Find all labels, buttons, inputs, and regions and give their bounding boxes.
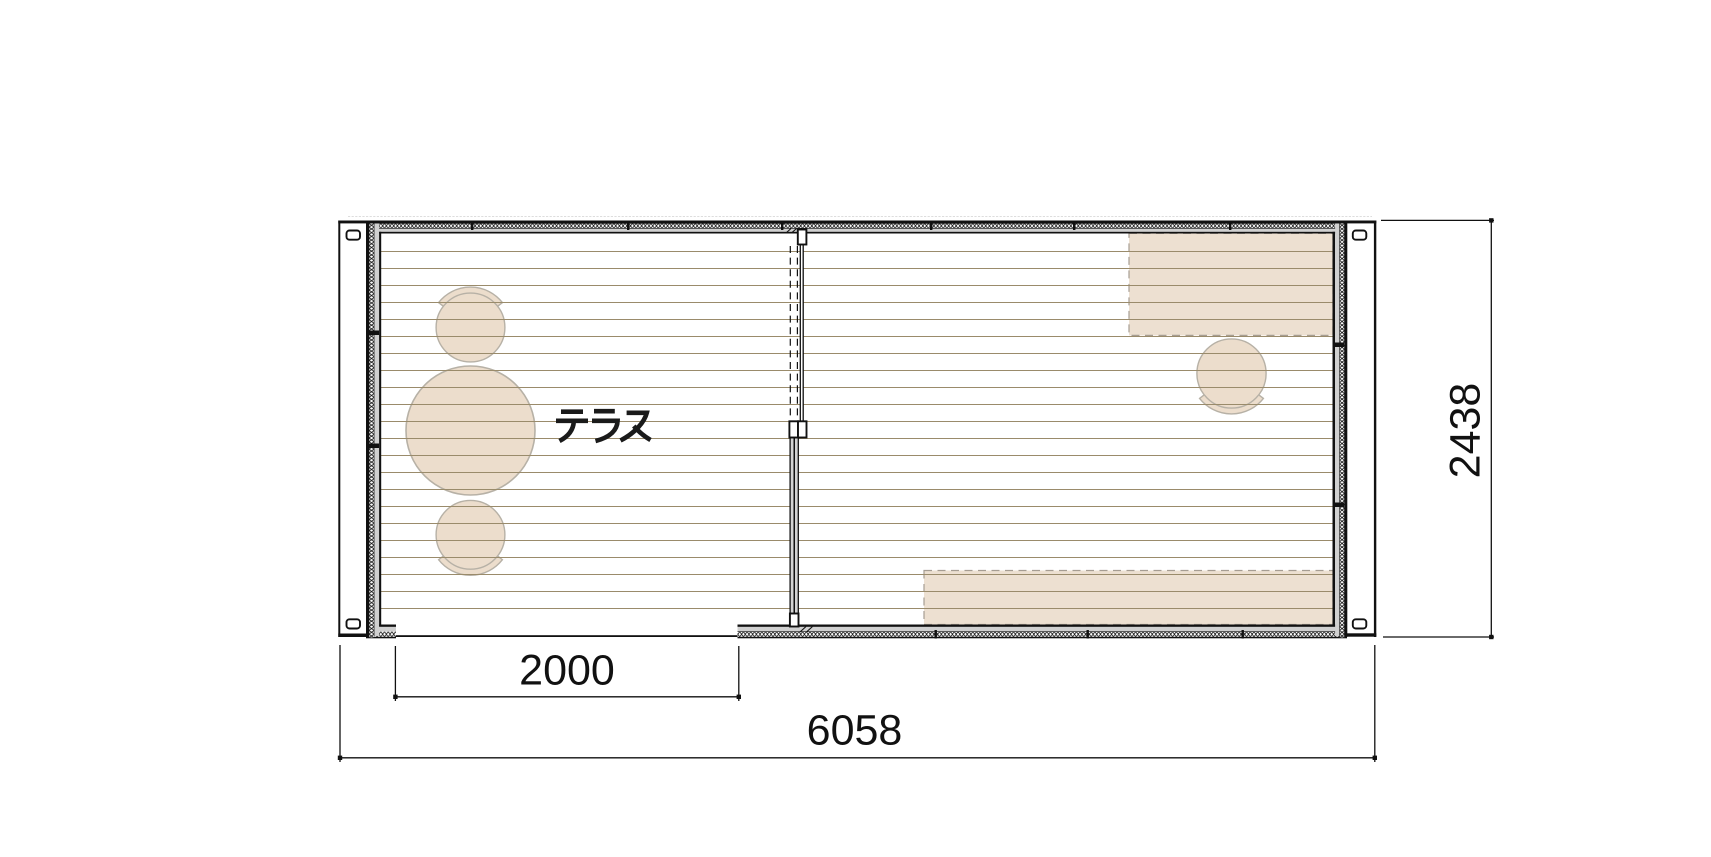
svg-text:2438: 2438 — [1442, 383, 1490, 479]
svg-text:6058: 6058 — [807, 707, 903, 755]
svg-text:2000: 2000 — [519, 647, 615, 695]
